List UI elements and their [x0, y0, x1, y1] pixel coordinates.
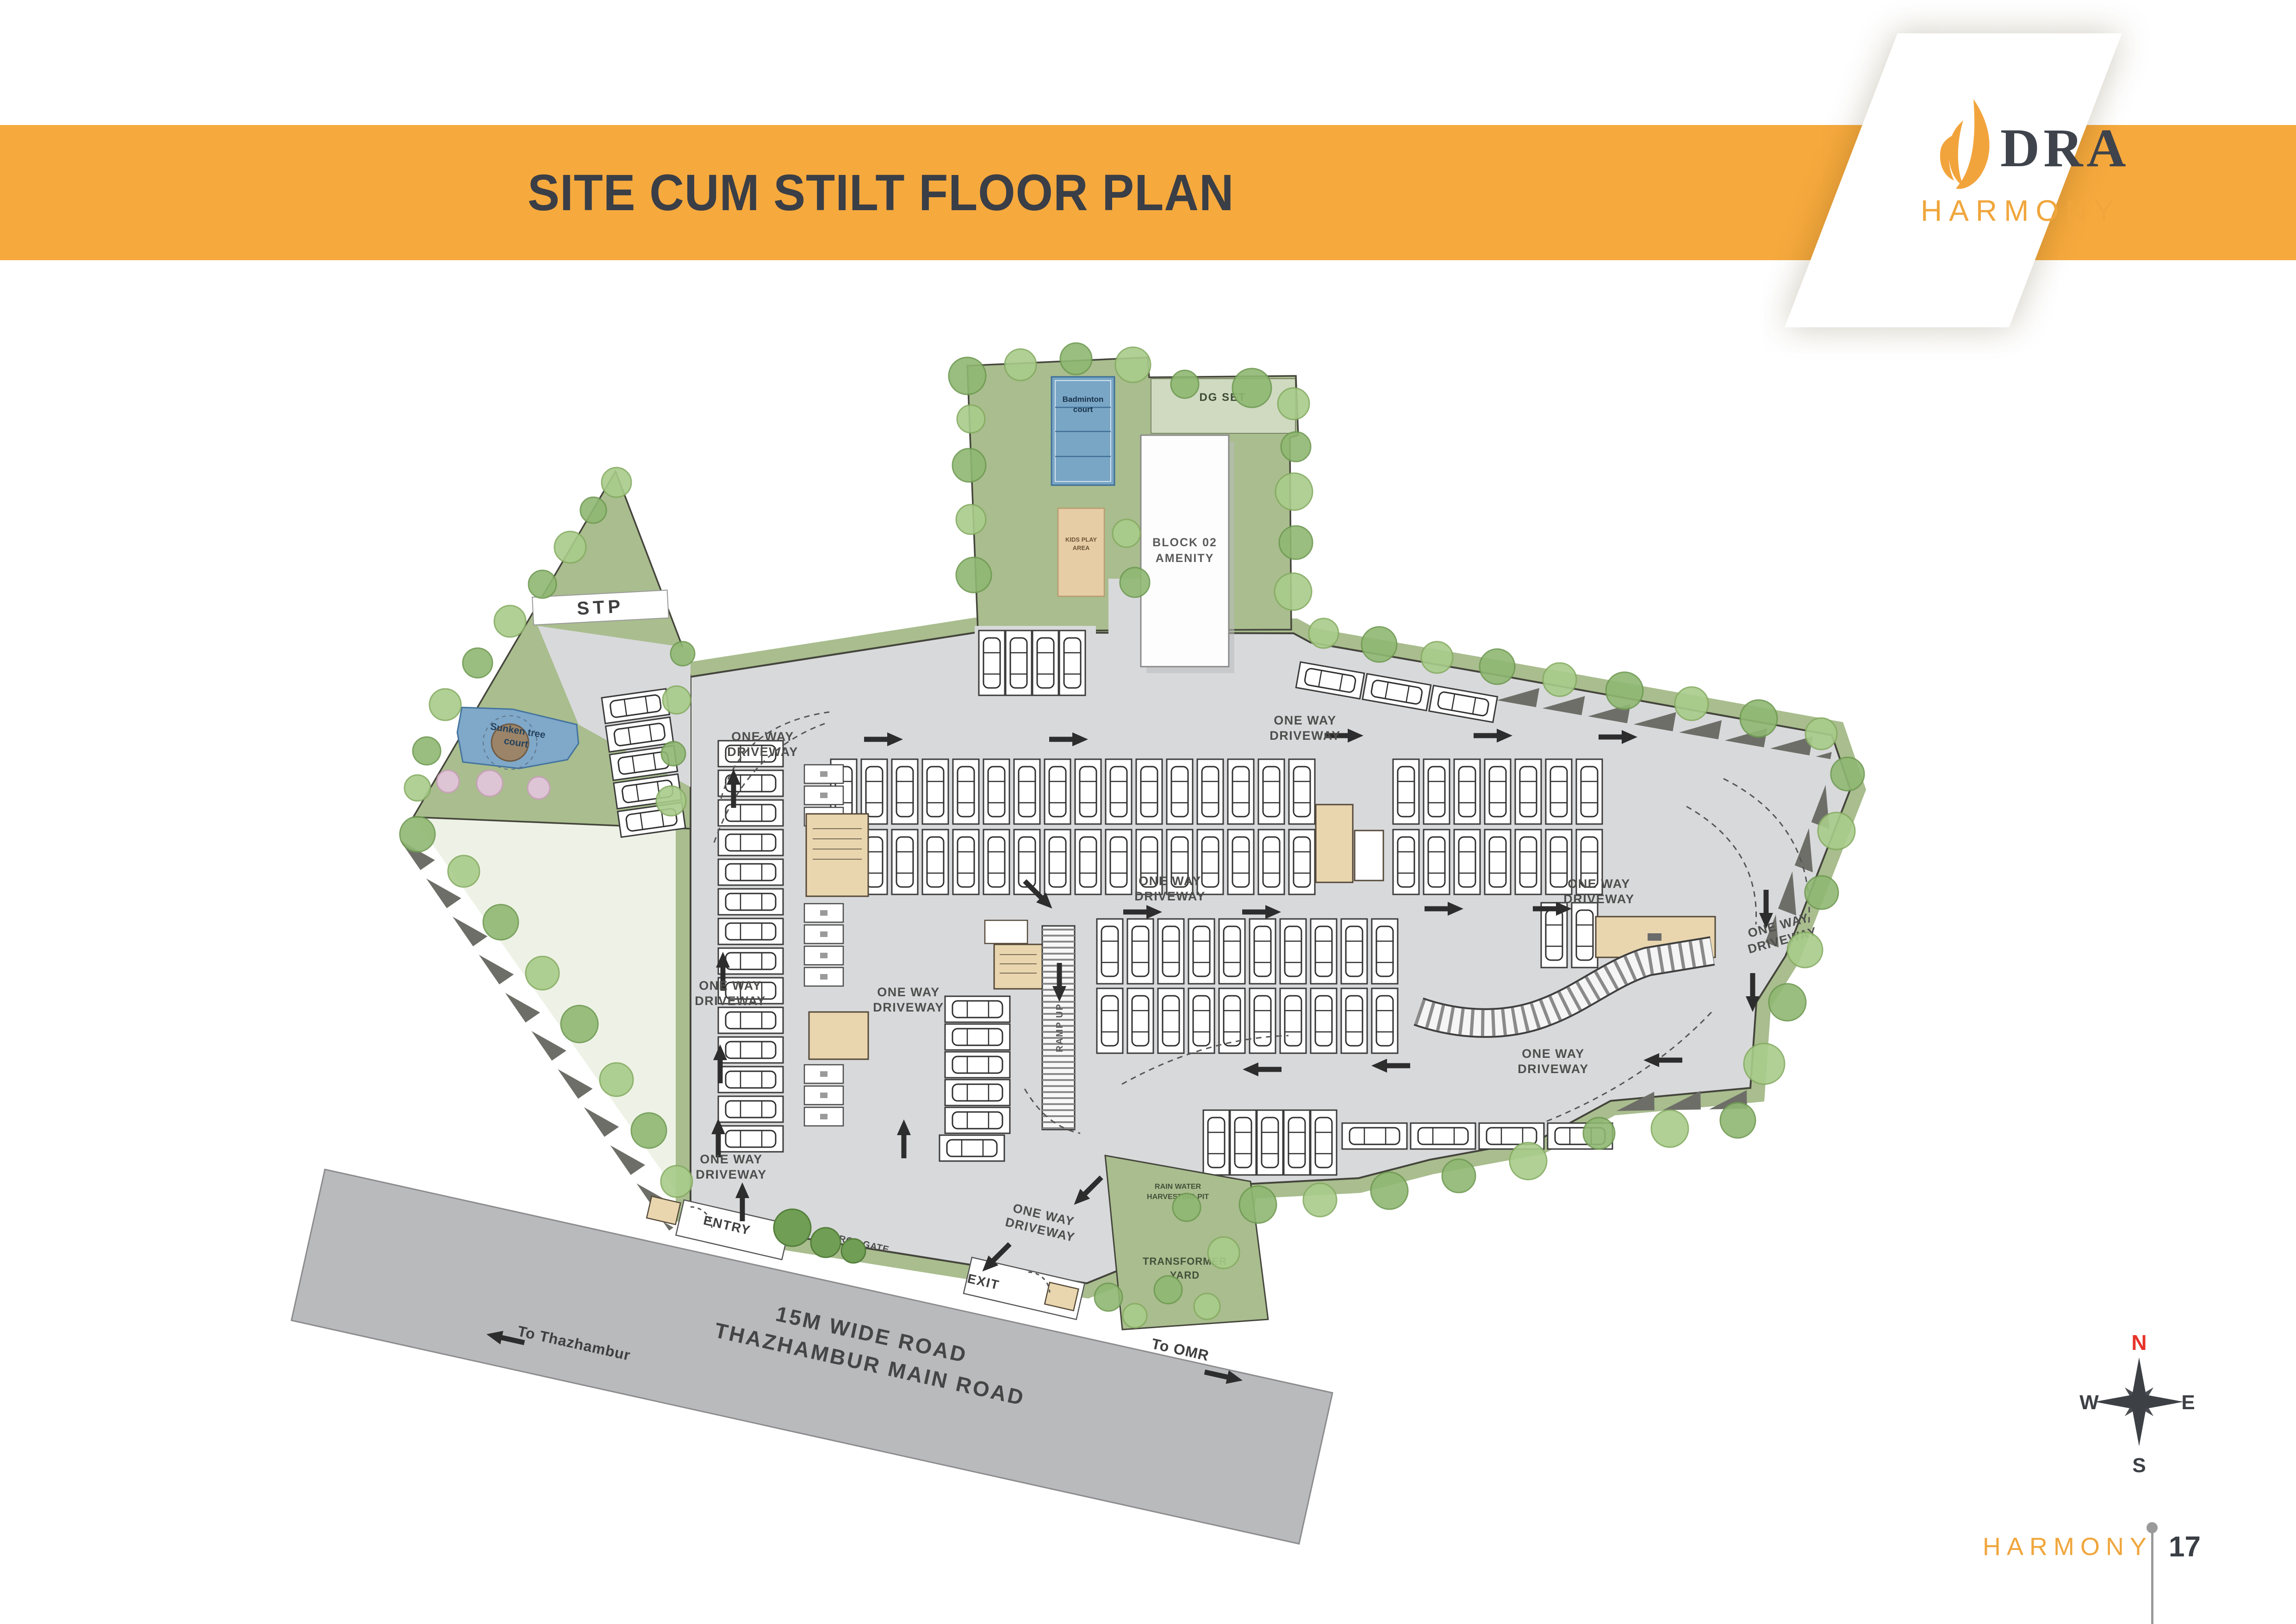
svg-text:DRIVEWAY: DRIVEWAY [1563, 892, 1635, 906]
svg-text:DRIVEWAY: DRIVEWAY [695, 994, 766, 1008]
straight-ramp: RAMP UP [1042, 926, 1075, 1130]
stp-label: STP [576, 596, 624, 619]
footer-brand: HARMONY [1983, 1532, 2153, 1561]
brochure-page: SITE CUM STILT FLOOR PLAN DRA HARMONY [0, 0, 2296, 1624]
transformer-yard: RAIN WATER HARVESTING PIT TRANSFORMER YA… [1105, 1156, 1268, 1330]
compass-n: N [2131, 1330, 2147, 1355]
badminton-court: Badminton court [1052, 377, 1114, 485]
site-plan: STP Sunken tree court DG SET [0, 0, 2296, 1624]
kids-play-area: KIDS PLAY AREA [1058, 508, 1104, 596]
svg-text:court: court [1073, 405, 1093, 414]
svg-text:ONE WAY: ONE WAY [700, 1152, 763, 1166]
compass-w: W [2079, 1391, 2099, 1414]
svg-text:DRIVEWAY: DRIVEWAY [696, 1168, 767, 1181]
svg-text:RAIN WATER: RAIN WATER [1155, 1183, 1201, 1191]
svg-text:ONE WAY: ONE WAY [877, 985, 940, 999]
compass-rose: N E S W [2079, 1330, 2195, 1477]
svg-text:DRIVEWAY: DRIVEWAY [1269, 729, 1341, 743]
svg-text:ONE WAY: ONE WAY [699, 979, 762, 993]
svg-text:DRIVEWAY: DRIVEWAY [727, 745, 798, 759]
ramp-label: RAMP UP [1055, 1003, 1065, 1052]
svg-text:DRIVEWAY: DRIVEWAY [1518, 1062, 1589, 1076]
svg-text:AREA: AREA [1073, 544, 1090, 551]
svg-text:ONE WAY: ONE WAY [731, 730, 794, 743]
svg-text:DRIVEWAY: DRIVEWAY [1134, 889, 1206, 903]
footer-divider [2151, 1529, 2153, 1624]
svg-text:Badminton: Badminton [1063, 395, 1104, 404]
svg-text:ONE WAY: ONE WAY [1568, 877, 1630, 891]
svg-text:DRIVEWAY: DRIVEWAY [873, 1000, 944, 1014]
svg-text:AMENITY: AMENITY [1156, 552, 1214, 565]
svg-text:ONE WAY: ONE WAY [1522, 1047, 1585, 1061]
amenity-building: BLOCK 02 AMENITY [1141, 435, 1234, 673]
svg-text:ONE WAY: ONE WAY [1274, 713, 1337, 727]
page-number: 17 [2169, 1530, 2201, 1563]
compass-e: E [2181, 1391, 2195, 1414]
svg-text:BLOCK 02: BLOCK 02 [1152, 536, 1217, 549]
svg-text:KIDS PLAY: KIDS PLAY [1065, 536, 1097, 543]
compass-s: S [2132, 1454, 2146, 1477]
svg-text:ONE WAY: ONE WAY [1139, 874, 1201, 888]
